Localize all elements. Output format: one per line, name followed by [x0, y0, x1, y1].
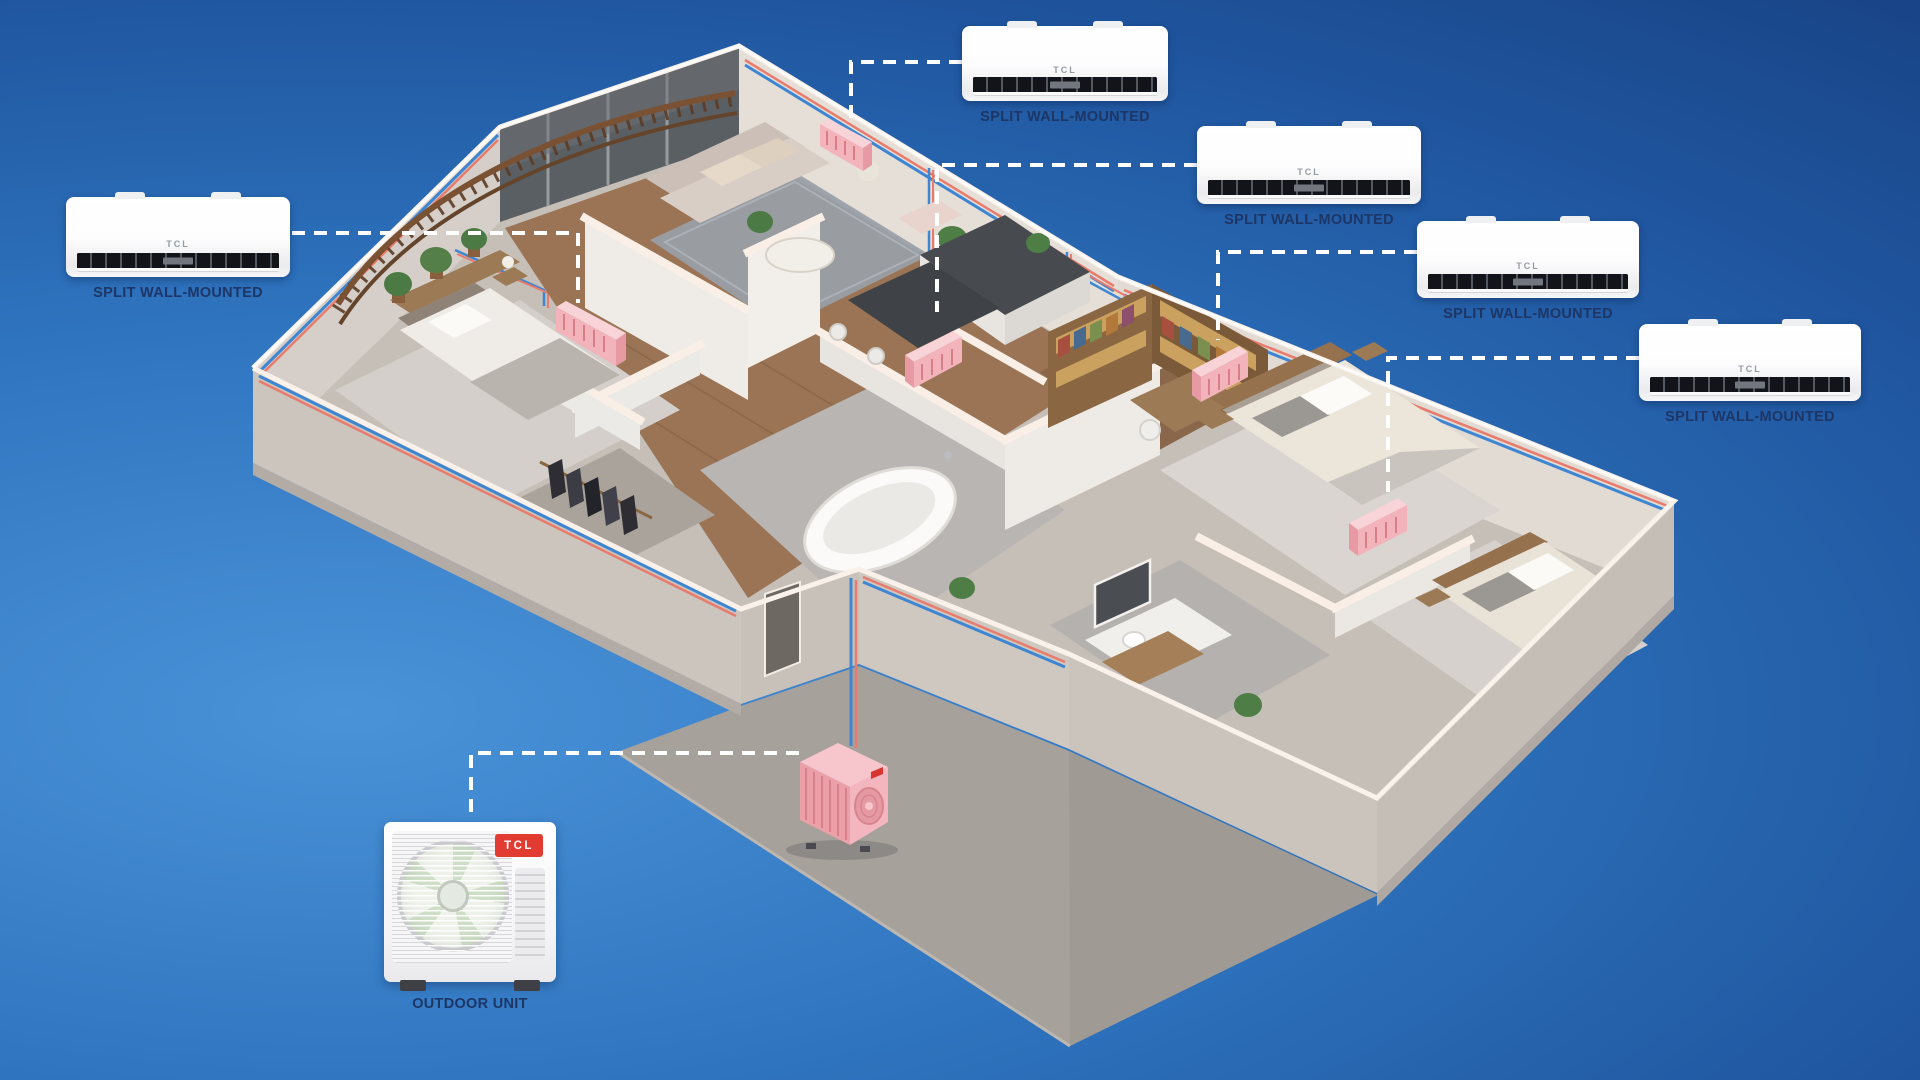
- mount-tab: [1560, 216, 1590, 223]
- mount-tab: [1246, 121, 1276, 128]
- unit-label: OUTDOOR UNIT: [384, 996, 556, 1012]
- tcl-logo: TCL: [1297, 167, 1321, 177]
- unit-label: SPLIT WALL-MOUNTED: [1197, 212, 1421, 228]
- floorplan-illustration: [0, 0, 1920, 1080]
- mount-tab: [1782, 319, 1812, 326]
- tcl-logo: TCL: [166, 239, 190, 249]
- tcl-multi-split-diagram: TCL SPLIT WALL-MOUNTED TCL SPLIT WALL-MO…: [0, 0, 1920, 1080]
- tcl-logo: TCL: [1738, 364, 1762, 374]
- split-unit-2: TCL SPLIT WALL-MOUNTED: [1197, 126, 1421, 204]
- tcl-logo: TCL: [1053, 65, 1077, 75]
- split-unit-top-body: TCL: [962, 26, 1168, 101]
- air-vent: [1428, 274, 1628, 292]
- outdoor-unit-body: TCL: [384, 822, 556, 982]
- outdoor-unit: TCL OUTDOOR UNIT: [384, 822, 556, 982]
- split-unit-3: TCL SPLIT WALL-MOUNTED: [1417, 221, 1639, 298]
- fan-icon: [397, 840, 509, 952]
- split-unit-4-body: TCL: [1639, 324, 1861, 401]
- tcl-logo: TCL: [1516, 261, 1540, 271]
- mount-tab: [1007, 21, 1037, 28]
- unit-label: SPLIT WALL-MOUNTED: [1639, 409, 1861, 425]
- air-vent: [973, 77, 1157, 95]
- split-unit-2-body: TCL: [1197, 126, 1421, 204]
- unit-foot: [400, 980, 426, 991]
- unit-foot: [514, 980, 540, 991]
- mount-tab: [115, 192, 145, 199]
- connector-top-unit: [851, 62, 962, 119]
- unit-label: SPLIT WALL-MOUNTED: [1417, 306, 1639, 322]
- split-unit-4: TCL SPLIT WALL-MOUNTED: [1639, 324, 1861, 401]
- unit-label: SPLIT WALL-MOUNTED: [66, 285, 290, 301]
- air-vent: [77, 253, 279, 271]
- split-unit-top: TCL SPLIT WALL-MOUNTED: [962, 26, 1168, 101]
- side-vents: [515, 868, 545, 960]
- split-unit-3-body: TCL: [1417, 221, 1639, 298]
- split-unit-left-body: TCL: [66, 197, 290, 277]
- mount-tab: [1093, 21, 1123, 28]
- mount-tab: [1342, 121, 1372, 128]
- tcl-badge: TCL: [495, 834, 543, 857]
- air-vent: [1650, 377, 1850, 395]
- split-unit-left: TCL SPLIT WALL-MOUNTED: [66, 197, 290, 277]
- mount-tab: [1466, 216, 1496, 223]
- mount-tab: [1688, 319, 1718, 326]
- unit-label: SPLIT WALL-MOUNTED: [962, 109, 1168, 125]
- mount-tab: [211, 192, 241, 199]
- air-vent: [1208, 180, 1410, 198]
